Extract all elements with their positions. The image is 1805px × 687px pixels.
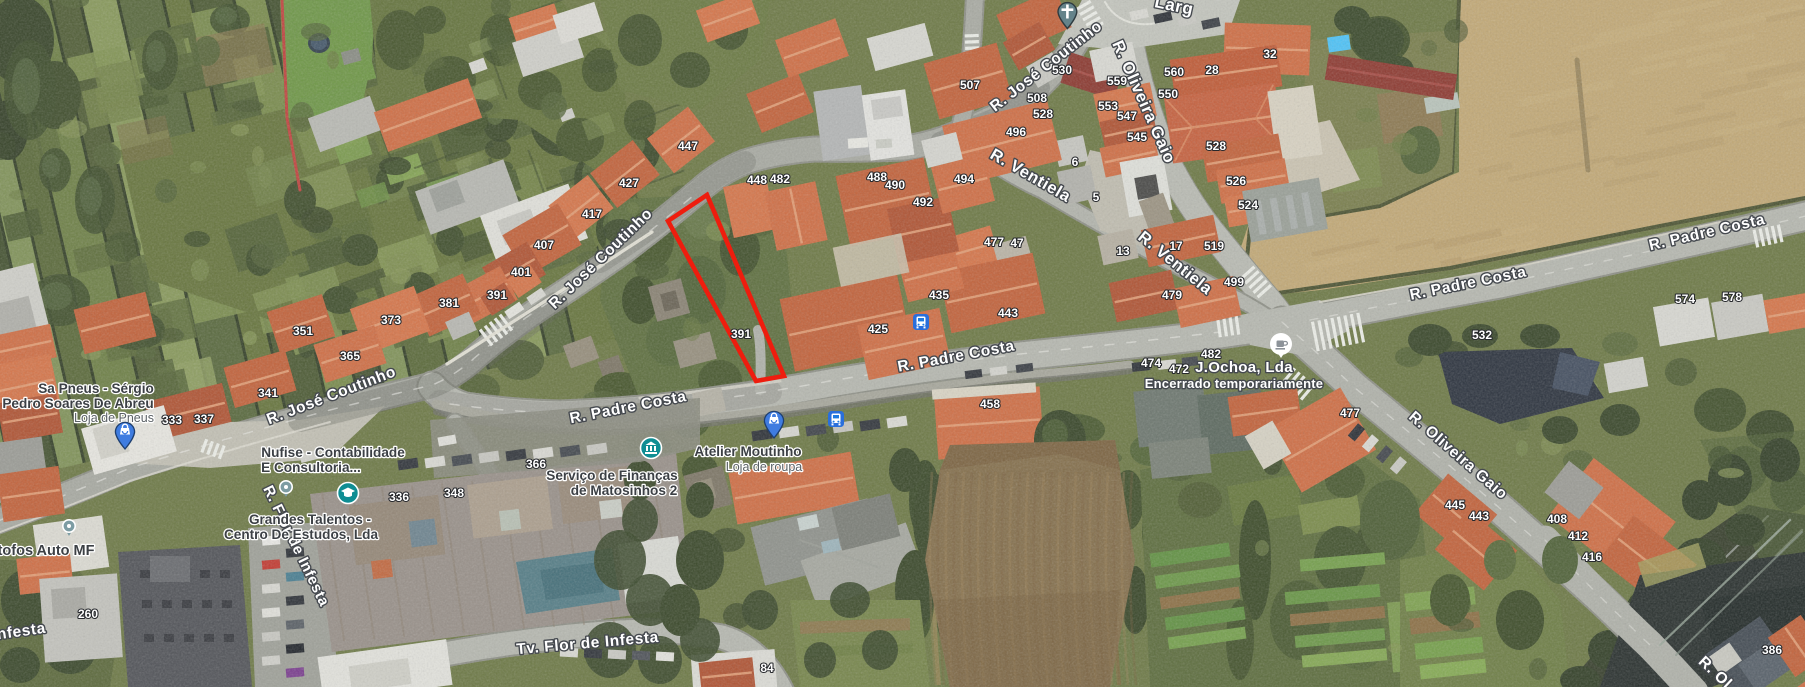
svg-text:550: 550 [1158,87,1178,101]
svg-text:458: 458 [980,397,1000,411]
svg-text:17: 17 [1169,239,1183,253]
svg-text:391: 391 [487,288,507,302]
svg-text:Atelier Moutinho: Atelier Moutinho [694,444,801,459]
svg-text:445: 445 [1445,498,1465,512]
svg-text:5: 5 [1093,190,1100,204]
svg-text:Loja de Pneus: Loja de Pneus [74,411,154,425]
svg-text:6: 6 [1072,155,1079,169]
svg-text:482: 482 [770,172,790,186]
svg-text:407: 407 [534,238,554,252]
svg-text:Sa Pneus - Sérgio: Sa Pneus - Sérgio [38,381,154,396]
svg-text:365: 365 [340,349,360,363]
svg-text:578: 578 [1722,290,1742,304]
svg-text:532: 532 [1472,328,1492,342]
svg-text:Serviço de Finanças: Serviço de Finanças [546,468,677,483]
svg-text:547: 547 [1117,109,1137,123]
svg-text:416: 416 [1582,550,1602,564]
svg-text:386: 386 [1762,643,1782,657]
svg-text:492: 492 [913,195,933,209]
svg-text:412: 412 [1568,529,1588,543]
svg-text:435: 435 [929,288,949,302]
svg-text:de Matosinhos 2: de Matosinhos 2 [571,483,678,498]
svg-text:477: 477 [1340,406,1360,420]
svg-text:417: 417 [582,207,602,221]
svg-text:336: 336 [389,490,409,504]
svg-text:47: 47 [1010,236,1024,250]
svg-text:13: 13 [1116,244,1130,258]
svg-text:528: 528 [1206,139,1226,153]
svg-text:528: 528 [1033,107,1053,121]
svg-text:32: 32 [1263,47,1277,61]
svg-text:530: 530 [1052,63,1072,77]
svg-text:366: 366 [526,457,546,471]
svg-text:348: 348 [444,486,464,500]
svg-text:524: 524 [1238,198,1258,212]
svg-text:494: 494 [954,172,974,186]
svg-text:499: 499 [1224,275,1244,289]
svg-text:351: 351 [293,324,313,338]
svg-text:553: 553 [1098,99,1118,113]
svg-text:Nufise - Contabilidade: Nufise - Contabilidade [261,445,405,460]
svg-text:443: 443 [1469,509,1489,523]
svg-text:J.Ochoa, Lda: J.Ochoa, Lda [1195,359,1293,376]
svg-text:333: 333 [162,413,182,427]
svg-text:425: 425 [868,322,888,336]
svg-text:490: 490 [885,178,905,192]
svg-text:508: 508 [1027,91,1047,105]
svg-text:373: 373 [381,313,401,327]
svg-text:260: 260 [78,607,98,621]
svg-text:Encerrado temporariamente: Encerrado temporariamente [1145,376,1323,391]
svg-text:Pedro Soares De Abreu: Pedro Soares De Abreu [2,396,153,411]
svg-text:408: 408 [1547,512,1567,526]
svg-text:479: 479 [1162,288,1182,302]
svg-text:526: 526 [1226,174,1246,188]
svg-text:560: 560 [1164,65,1184,79]
svg-text:474: 474 [1141,356,1161,370]
svg-text:E Consultoria...: E Consultoria... [261,460,361,475]
svg-text:447: 447 [678,139,698,153]
svg-text:341: 341 [258,386,278,400]
svg-text:337: 337 [194,412,214,426]
svg-text:427: 427 [619,176,639,190]
svg-text:559: 559 [1107,74,1127,88]
svg-text:496: 496 [1006,125,1026,139]
svg-text:391: 391 [731,327,751,341]
svg-text:519: 519 [1204,239,1224,253]
svg-text:381: 381 [439,296,459,310]
svg-text:443: 443 [998,306,1018,320]
svg-text:84: 84 [760,661,774,675]
svg-text:Grandes Talentos -: Grandes Talentos - [249,512,371,527]
svg-text:477: 477 [984,235,1004,249]
svg-text:Centro De Estudos, Lda: Centro De Estudos, Lda [224,527,379,542]
svg-text:545: 545 [1127,130,1147,144]
svg-text:stofos Auto MF: stofos Auto MF [0,543,95,559]
svg-text:574: 574 [1675,292,1695,306]
svg-text:28: 28 [1205,63,1219,77]
svg-text:Loja de roupa: Loja de roupa [726,460,803,474]
svg-text:401: 401 [511,265,531,279]
svg-text:507: 507 [960,78,980,92]
svg-text:472: 472 [1169,362,1189,376]
svg-text:448: 448 [747,173,767,187]
